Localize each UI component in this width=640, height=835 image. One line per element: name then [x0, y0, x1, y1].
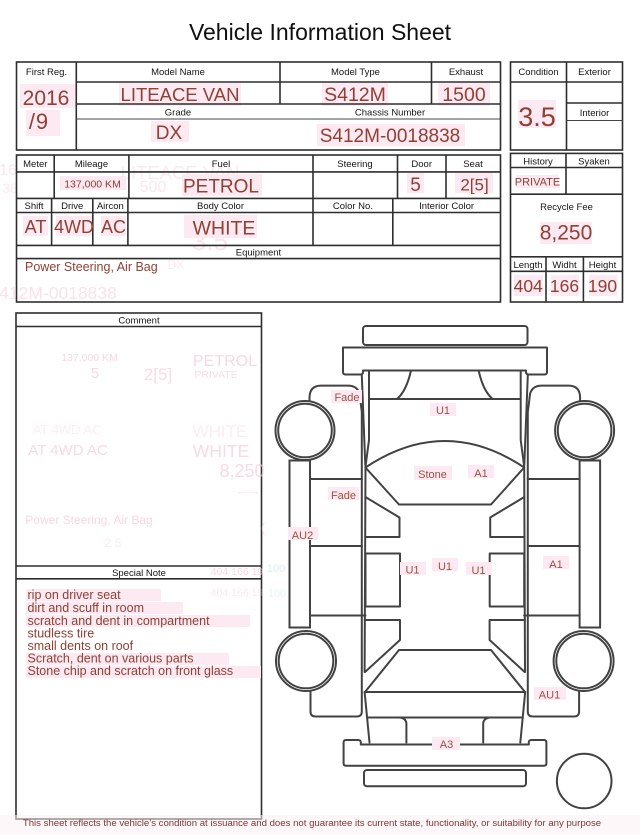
svg-text:100: 100 — [268, 588, 286, 600]
svg-text:Seat: Seat — [463, 159, 483, 170]
svg-text:Length: Length — [513, 260, 542, 271]
svg-text:Fuel: Fuel — [212, 159, 230, 170]
svg-text:PETROL: PETROL — [183, 177, 259, 198]
svg-text:Height: Height — [589, 260, 617, 271]
svg-text:AT: AT — [25, 217, 47, 237]
svg-text:Equipment: Equipment — [236, 248, 282, 259]
svg-text:16: 16 — [0, 162, 17, 179]
svg-text:Stone chip and scratch on fron: Stone chip and scratch on front glass — [28, 664, 234, 678]
svg-text:Model Type: Model Type — [331, 67, 380, 78]
svg-text:First Reg.: First Reg. — [26, 67, 67, 78]
svg-text:Power Steering, Air Bag: Power Steering, Air Bag — [25, 513, 152, 527]
svg-text:U1: U1 — [438, 561, 452, 573]
svg-text:Color No.: Color No. — [333, 201, 373, 212]
svg-text:Steering: Steering — [337, 159, 372, 170]
svg-text:8,250: 8,250 — [219, 461, 264, 481]
svg-text:PRIVATE: PRIVATE — [194, 369, 237, 381]
svg-text:S412M: S412M — [324, 84, 386, 106]
svg-text:History: History — [523, 157, 553, 168]
svg-text:LITEACE VAN: LITEACE VAN — [121, 84, 240, 105]
svg-text:Fade: Fade — [331, 490, 356, 502]
svg-text:137,000 KM: 137,000 KM — [61, 352, 118, 364]
svg-text:Interior: Interior — [580, 108, 610, 119]
svg-text:Stone: Stone — [418, 469, 447, 481]
svg-text:Door: Door — [411, 159, 432, 170]
svg-text:500: 500 — [140, 179, 167, 196]
svg-text:Mileage: Mileage — [75, 159, 108, 170]
svg-text:A3: A3 — [440, 739, 453, 751]
svg-text:Comment: Comment — [118, 316, 160, 327]
svg-text:8,250: 8,250 — [540, 222, 593, 245]
svg-text:100: 100 — [267, 563, 285, 575]
svg-text:2[5]: 2[5] — [144, 365, 172, 384]
svg-text:S412M-0018838: S412M-0018838 — [320, 126, 461, 147]
svg-text:404 166 19: 404 166 19 — [211, 587, 264, 599]
svg-text:2 5: 2 5 — [105, 536, 122, 550]
svg-text:1500: 1500 — [442, 84, 486, 106]
svg-text:Meter: Meter — [23, 159, 47, 170]
svg-text:2016: 2016 — [23, 87, 70, 110]
svg-text:PRIVATE: PRIVATE — [515, 177, 560, 189]
svg-text:404: 404 — [514, 276, 543, 296]
svg-text:WHITE: WHITE — [193, 441, 249, 461]
svg-text:Vehicle Information Sheet: Vehicle Information Sheet — [189, 19, 452, 45]
svg-text:4WD: 4WD — [54, 217, 94, 237]
svg-text:Grade: Grade — [165, 108, 191, 119]
svg-text:-- --: -- -- — [238, 484, 259, 499]
svg-text:WHITE: WHITE — [193, 422, 248, 441]
svg-text:WHITE: WHITE — [193, 218, 256, 240]
svg-text:190: 190 — [588, 276, 617, 296]
svg-text:Aircon: Aircon — [97, 201, 124, 212]
svg-text:Power Steering, Air Bag: Power Steering, Air Bag — [25, 260, 158, 274]
svg-text:AT 4WD AC: AT 4WD AC — [28, 442, 108, 459]
svg-text:PETROL: PETROL — [193, 353, 257, 370]
svg-text:Chassis Number: Chassis Number — [355, 108, 425, 119]
svg-text:U1: U1 — [436, 405, 450, 417]
svg-text:AC: AC — [101, 217, 126, 237]
svg-text:This sheet reflects the vehicl: This sheet reflects the vehicle’s condit… — [23, 818, 601, 829]
svg-text:Fade: Fade — [334, 392, 359, 404]
svg-text:Drive: Drive — [61, 201, 83, 212]
svg-text:Special Note: Special Note — [112, 568, 166, 579]
svg-text:Exterior: Exterior — [578, 67, 611, 78]
svg-text:AU2: AU2 — [292, 530, 313, 542]
svg-text:/9: /9 — [29, 109, 49, 134]
svg-text:dirt and scuff in room: dirt and scuff in room — [28, 601, 145, 615]
svg-text:DX: DX — [168, 258, 185, 272]
svg-text:Recycle Fee: Recycle Fee — [540, 202, 593, 213]
svg-text:AT 4WD AC: AT 4WD AC — [33, 422, 102, 437]
svg-text:U1: U1 — [471, 565, 485, 577]
svg-text:137,000 KM: 137,000 KM — [64, 179, 121, 191]
svg-text:5: 5 — [410, 175, 421, 196]
svg-text:412M-0018838: 412M-0018838 — [0, 283, 117, 303]
svg-text:AU1: AU1 — [539, 690, 560, 702]
svg-text:38: 38 — [2, 180, 18, 196]
svg-text:404 166 19: 404 166 19 — [211, 566, 264, 578]
svg-text:166: 166 — [550, 276, 579, 296]
svg-text:Shift: Shift — [24, 201, 43, 212]
svg-text:Body Color: Body Color — [197, 201, 244, 212]
svg-text:5: 5 — [91, 365, 99, 382]
svg-text:(: ( — [261, 520, 266, 535]
svg-text:U1: U1 — [405, 565, 419, 577]
svg-text:Exhaust: Exhaust — [449, 67, 484, 78]
svg-text:2[5]: 2[5] — [460, 176, 488, 195]
svg-text:A1: A1 — [474, 468, 487, 480]
svg-text:Condition: Condition — [518, 67, 558, 78]
svg-text:A1: A1 — [549, 559, 562, 571]
svg-text:Syaken: Syaken — [578, 157, 610, 168]
svg-text:Model Name: Model Name — [151, 67, 205, 78]
svg-text:rip on driver seat: rip on driver seat — [28, 588, 122, 602]
svg-text:Interior Color: Interior Color — [419, 201, 474, 212]
svg-text:Widht: Widht — [552, 260, 577, 271]
svg-text:3.5: 3.5 — [518, 102, 556, 132]
svg-text:DX: DX — [156, 123, 183, 144]
